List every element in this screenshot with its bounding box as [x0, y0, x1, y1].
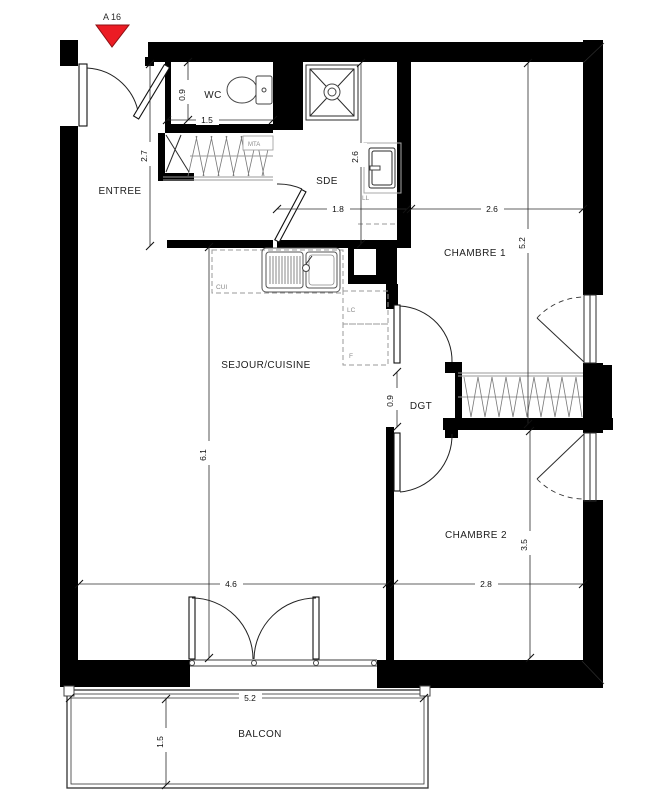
dim-chambre1-width: 2.6: [486, 204, 498, 214]
sink-drainboard-bars: [270, 256, 300, 284]
shower-drain-inner: [328, 88, 336, 96]
glazing-junction-1: [190, 661, 195, 666]
washer-handle: [370, 166, 380, 170]
wc-door-leaf-open: [134, 64, 170, 119]
room-label-dgt: DGT: [410, 401, 432, 412]
dim-balcon-width: 5.2: [244, 693, 256, 703]
bedroom-closet: [458, 373, 583, 417]
chambre1-door-leaf: [394, 305, 400, 363]
faucet-icon: [303, 265, 310, 272]
room-label-entree: ENTREE: [99, 186, 142, 197]
wall-bottom-right: [377, 660, 603, 688]
floor-plan-page: A 16: [0, 0, 668, 800]
glazing-junction-2: [252, 661, 257, 666]
wc-fixtures: [227, 76, 272, 104]
exterior-walls: [60, 40, 612, 688]
wall-sde-east: [397, 62, 411, 248]
balcony-post-right: [420, 686, 430, 696]
toilet-button-icon: [262, 88, 266, 92]
dgt-doors: [394, 305, 452, 492]
duct-diagonal-2: [166, 135, 181, 172]
floor-plan-drawing: A 16: [0, 0, 668, 800]
dim-wc-depth: 0.9: [177, 89, 187, 101]
room-label-wc: WC: [204, 90, 221, 101]
french-door-arc-left: [192, 598, 253, 659]
wall-right-bottom: [583, 500, 603, 688]
kitchen-counter-dashed: [212, 250, 343, 293]
wall-left: [60, 126, 78, 687]
french-door: [189, 597, 377, 666]
closet-left-edge: [455, 362, 462, 420]
dim-chambre1-height: 5.2: [517, 237, 527, 249]
room-label-chambre1: CHAMBRE 1: [444, 248, 506, 259]
dim-chambre2-height: 3.5: [519, 539, 529, 551]
entrance-door-leaf-closed: [79, 64, 87, 126]
entrance-door-swing-arc: [87, 68, 139, 118]
dim-sejour-width: 4.6: [225, 579, 237, 589]
shower: [306, 65, 358, 120]
chambre2-door-swing-arc: [400, 434, 452, 492]
french-door-leaf-right: [313, 597, 319, 659]
wall-top: [148, 42, 603, 62]
wall-right-top: [583, 40, 603, 295]
window1-casement: [537, 318, 584, 362]
room-label-sde: SDE: [316, 176, 338, 187]
room-labels: ENTREE WC SDE CHAMBRE 1 SEJOUR/CUISINE D…: [99, 90, 507, 740]
wall-sejour-top-a: [167, 240, 273, 248]
dishwasher-label: LC: [347, 307, 356, 314]
wall-wc-right: [273, 62, 303, 130]
sde-door-swing-arc: [277, 184, 302, 189]
dim-sejour-height: 6.1: [198, 449, 208, 461]
chambre1-door-swing-arc: [400, 306, 452, 362]
fridge-label: F: [349, 353, 353, 360]
kitchen-duct-hole: [354, 249, 376, 275]
entrance-marker: A 16: [96, 12, 129, 47]
toilet-bowl-icon: [227, 77, 257, 103]
dim-wc-width: 1.5: [201, 115, 213, 125]
french-door-leaf-left: [189, 597, 195, 659]
washer-label: LL: [362, 195, 370, 202]
french-door-arc-right: [254, 598, 316, 659]
sde-door: [275, 184, 306, 242]
wall-right-pilaster: [600, 365, 612, 425]
wall-bottom-left: [60, 660, 190, 687]
wall-chambre2-west: [386, 427, 394, 663]
glazing-junction-4: [372, 661, 377, 666]
sde-door-leaf: [275, 189, 306, 242]
window1-swing-arc: [537, 297, 584, 318]
chambre2-door-leaf: [394, 433, 400, 491]
duct-diagonal-1: [166, 135, 189, 172]
dim-dgt-width: 0.9: [385, 395, 395, 407]
wall-wc-bottom: [165, 124, 273, 133]
dim-sde-width: 1.8: [332, 204, 344, 214]
entrance-door: [79, 64, 170, 126]
meter-box-label: MTA: [248, 142, 260, 148]
wall-top-left-corner: [60, 40, 78, 66]
room-label-sejour: SEJOUR/CUISINE: [221, 360, 311, 371]
dim-chambre2-width: 2.8: [480, 579, 492, 589]
dim-balcon-depth: 1.5: [155, 736, 165, 748]
kitchen-counter-label: CUI: [216, 284, 227, 291]
sink-bowl-inner: [309, 255, 334, 285]
sink-drainboard: [266, 252, 303, 288]
room-label-balcon: BALCON: [238, 729, 282, 740]
window2-casement: [537, 434, 584, 479]
apartment-number-label: A 16: [103, 12, 121, 22]
dim-sde-height: 2.6: [350, 151, 360, 163]
wall-duct-left: [158, 133, 165, 180]
glazing-junction-3: [314, 661, 319, 666]
entrance-arrow-icon: [96, 25, 129, 47]
room-label-chambre2: CHAMBRE 2: [445, 530, 507, 541]
dim-entree-height: 2.7: [139, 150, 149, 162]
wall-sejour-top-b: [277, 240, 352, 248]
window2-swing-arc: [537, 479, 584, 499]
balcony-post-left: [64, 686, 74, 696]
